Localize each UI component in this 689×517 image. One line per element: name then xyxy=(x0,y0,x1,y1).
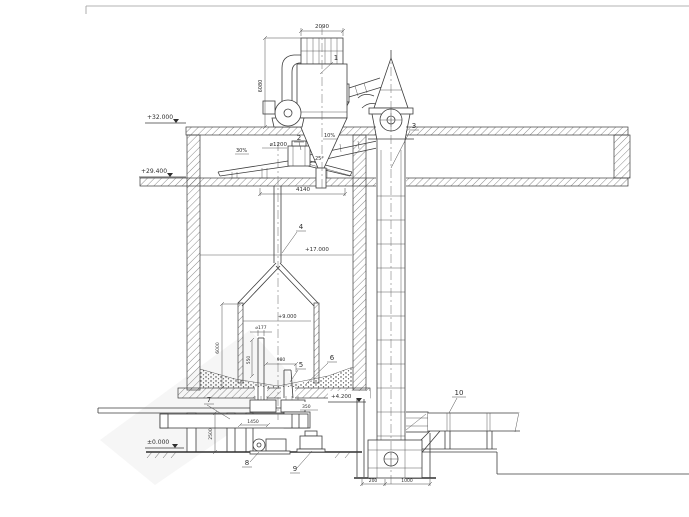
level-top: +32.000 xyxy=(147,114,173,121)
level-cone: +9.000 xyxy=(278,314,297,320)
dim-spread-width: 4140 xyxy=(296,187,310,193)
part-label-10: 10 xyxy=(455,389,464,397)
silo-wall-left xyxy=(187,135,200,390)
part-label-2: 2 xyxy=(297,134,301,142)
elevator-head-cap xyxy=(374,58,408,108)
part-label-4: 4 xyxy=(299,223,304,231)
level-gallery: +29.400 xyxy=(141,168,167,175)
dim-chute-slope: 10% xyxy=(324,133,335,139)
level-floor: +4.200 xyxy=(331,394,352,400)
drawing-sheet: 2090 6080 ⌀1200 30% 10% 25° 4140 6000 ⌀1… xyxy=(0,0,689,517)
level-mid: +17.000 xyxy=(305,247,329,253)
dim-pipe-dia: ⌀177 xyxy=(255,325,266,331)
silo-wall-right xyxy=(353,135,366,390)
dim-basement-height: 2500 xyxy=(208,428,214,440)
dim-filter-height: 6080 xyxy=(258,80,264,93)
silo-structure xyxy=(98,127,630,413)
part-label-1: 1 xyxy=(334,54,338,62)
engineering-drawing: 2090 6080 ⌀1200 30% 10% 25° 4140 6000 ⌀1… xyxy=(0,0,689,517)
level-ground: ±0.000 xyxy=(147,439,169,446)
dim-chute-angle: 25° xyxy=(315,156,324,162)
dim-valve-span: 1450 xyxy=(247,419,259,425)
drive-unit-8 xyxy=(266,439,286,451)
part-label-8: 8 xyxy=(245,459,249,467)
dim-boot-width: 1000 xyxy=(401,478,413,484)
level-lines xyxy=(200,255,352,321)
part-label-9: 9 xyxy=(293,465,297,473)
dim-filter-width: 2090 xyxy=(315,24,329,30)
part-label-6: 6 xyxy=(330,354,335,362)
dim-boot-offset: 200 xyxy=(369,478,378,484)
dim-slope-left: 30% xyxy=(236,148,247,154)
dim-floor-offset: 350 xyxy=(302,404,311,410)
dim-pipe-len: 550 xyxy=(246,356,252,365)
part-label-5: 5 xyxy=(299,361,303,369)
part-label-7: 7 xyxy=(207,396,211,404)
part-label-3: 3 xyxy=(412,122,416,130)
dim-pipe-offset: 980 xyxy=(277,357,286,363)
basement-conveyor xyxy=(160,414,308,428)
boot-feed-conveyor xyxy=(404,412,689,474)
dim-cone-height: 6000 xyxy=(215,342,221,354)
sheet-frame xyxy=(86,6,689,14)
drive-unit-9 xyxy=(305,431,317,436)
dim-distributor-dia: ⌀1200 xyxy=(270,142,288,148)
